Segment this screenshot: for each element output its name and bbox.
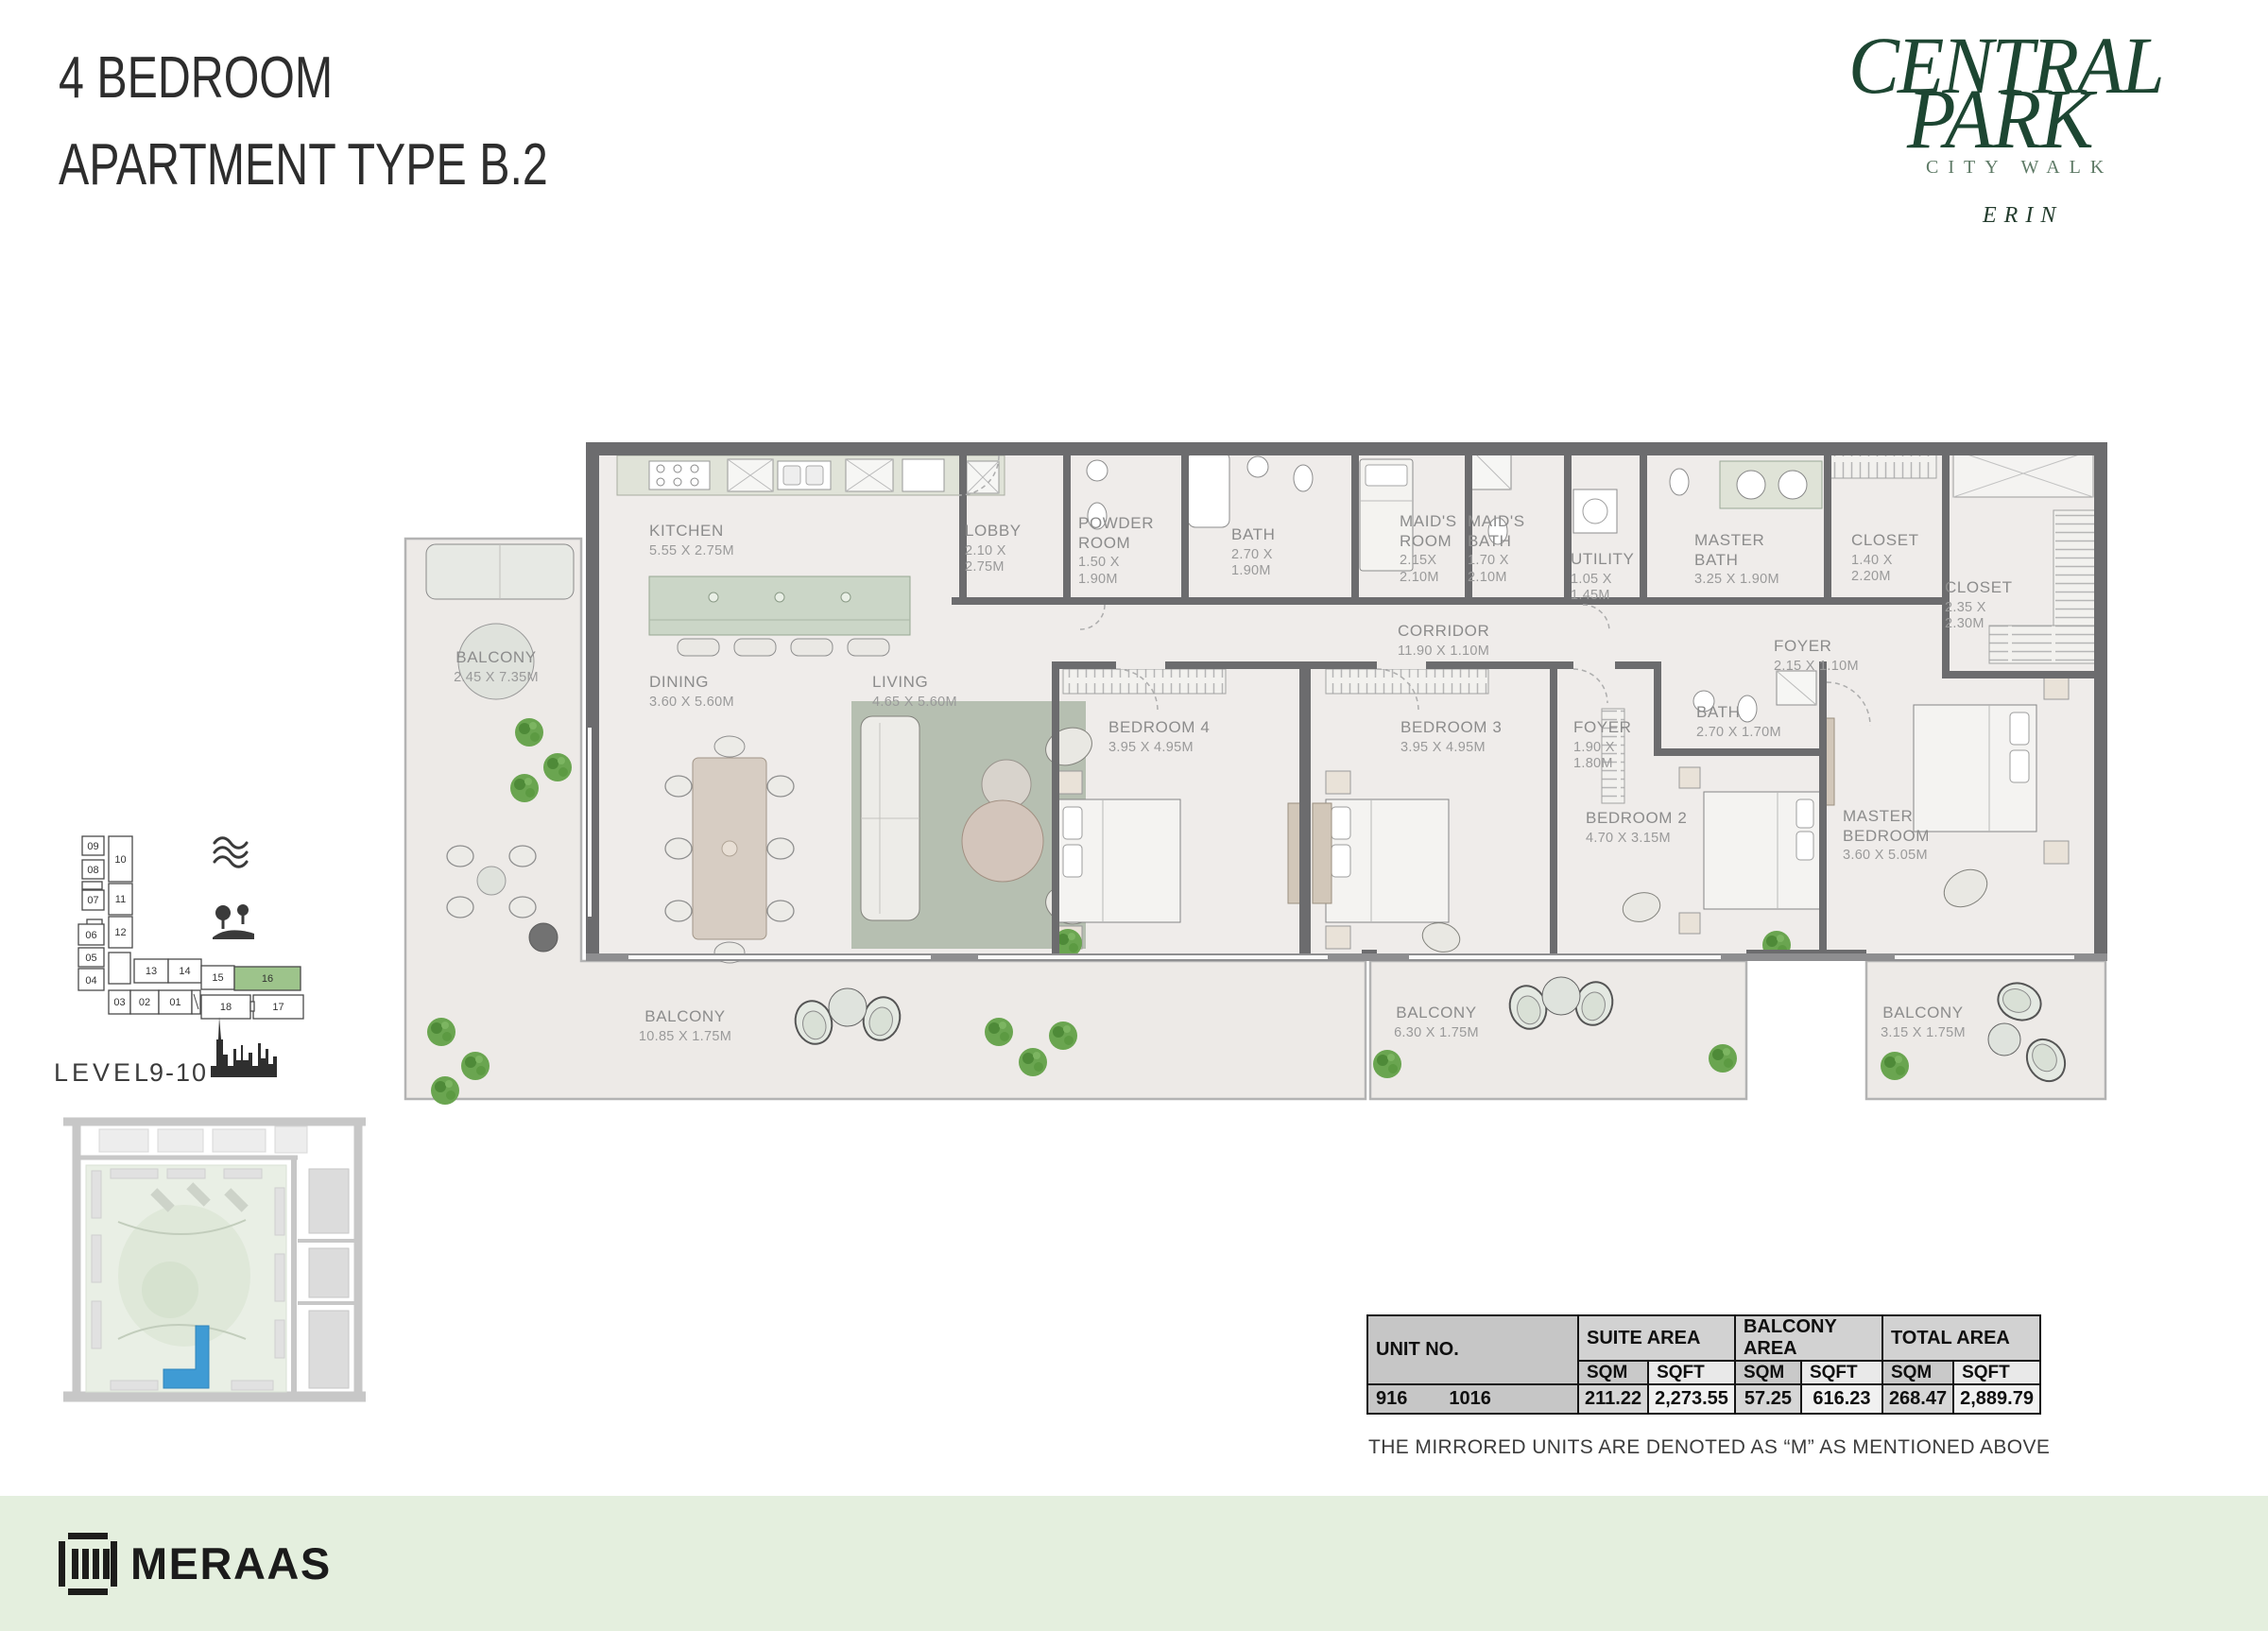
svg-text:09: 09 [87,841,98,852]
subheader-balcony-sqft: SQFT [1801,1361,1882,1384]
room-label-bath-bedrooms: BATH2.70 X 1.70M [1696,703,1781,741]
room-label-living: LIVING4.65 X 5.60M [872,673,957,711]
title-apartment-type: APARTMENT TYPE B.2 [59,136,548,195]
total-sqft-value: 2,889.79 [1953,1384,2040,1414]
table-row: 9161016 211.22 2,273.55 57.25 616.23 268… [1367,1384,2040,1414]
svg-text:07: 07 [87,895,98,906]
svg-text:17: 17 [272,1002,283,1013]
logo-park: PARK [1907,77,2210,163]
room-label-corridor: CORRIDOR11.90 X 1.10M [1398,622,1489,660]
room-label-bedroom-4: BEDROOM 43.95 X 4.95M [1108,718,1210,756]
meraas-wordmark: MERAAS [130,1537,332,1589]
level-label: LEVEL [54,1058,152,1087]
col-header-suite-area: SUITE AREA [1578,1315,1735,1361]
room-label-foyer-entry: FOYER2.15 X 1.10M [1774,637,1859,675]
col-header-unit-no: UNIT NO. [1367,1315,1578,1384]
balcony-sqft-value: 616.23 [1801,1384,1882,1414]
room-label-balcony-master: BALCONY3.15 X 1.75M [1857,1004,1989,1041]
brochure-page: 4 BEDROOM APARTMENT TYPE B.2 CENTRAL PAR… [0,0,2268,1631]
unit-numbers: 9161016 [1367,1384,1578,1414]
balcony-sqm-value: 57.25 [1735,1384,1801,1414]
svg-text:10: 10 [114,854,126,866]
room-label-dining: DINING3.60 X 5.60M [649,673,734,711]
suite-sqm-value: 211.22 [1578,1384,1648,1414]
subheader-total-sqft: SQFT [1953,1361,2040,1384]
title-bedrooms: 4 BEDROOM [59,49,548,108]
level-value: 9-10 [149,1058,208,1087]
key-plan: 09 10 08 07 11 06 12 05 04 13 14 15 16 0… [52,813,335,1096]
col-header-balcony-area: BALCONY AREA [1735,1315,1882,1361]
room-label-bedroom-2: BEDROOM 24.70 X 3.15M [1586,809,1687,847]
skyline-icon [211,1017,277,1077]
room-label-kitchen: KITCHEN5.55 X 2.75M [649,522,734,559]
site-map [52,1101,373,1413]
subheader-suite-sqm: SQM [1578,1361,1648,1384]
subheader-balcony-sqm: SQM [1735,1361,1801,1384]
meraas-logo-icon [59,1533,117,1595]
subheader-total-sqm: SQM [1882,1361,1953,1384]
svg-text:13: 13 [146,966,157,977]
room-label-balcony-main: BALCONY10.85 X 1.75M [610,1007,761,1045]
area-table: UNIT NO. SUITE AREA BALCONY AREA TOTAL A… [1366,1314,2041,1415]
col-header-total-area: TOTAL AREA [1882,1315,2040,1361]
svg-text:15: 15 [212,972,223,984]
room-label-master-bath: MASTER BATH3.25 X 1.90M [1694,531,1779,589]
subheader-suite-sqft: SQFT [1648,1361,1735,1384]
svg-text:08: 08 [87,865,98,876]
room-label-maids-room: MAID'S ROOM2.15X 2.10M [1400,512,1457,587]
footer: MERAAS [0,1496,2268,1631]
page-title: 4 BEDROOM APARTMENT TYPE B.2 [59,49,686,195]
central-park-logo: CENTRAL PARK CITY WALK ERIN [1833,25,2230,229]
room-label-master-bedroom: MASTER BEDROOM3.60 X 5.05M [1843,807,1930,865]
mirrored-units-note: THE MIRRORED UNITS ARE DENOTED AS “M” AS… [1368,1436,2050,1459]
svg-text:14: 14 [179,966,190,977]
svg-text:02: 02 [139,997,150,1008]
room-label-foyer-bedrooms: FOYER1.90 X 1.80M [1573,718,1632,773]
svg-text:06: 06 [85,930,96,941]
unit-number-a: 916 [1376,1388,1407,1409]
svg-text:01: 01 [169,997,180,1008]
svg-text:11: 11 [115,894,126,905]
waves-icon [215,838,247,867]
room-label-maids-bath: MAID'S BATH1.70 X 2.10M [1468,512,1525,587]
room-label-closet-1: CLOSET1.40 X 2.20M [1851,531,1919,586]
svg-text:04: 04 [85,975,96,987]
svg-text:16: 16 [262,973,273,985]
room-label-balcony-left: BALCONY2.45 X 7.35M [435,648,558,686]
room-label-balcony-center: BALCONY6.30 X 1.75M [1366,1004,1507,1041]
room-label-closet-2: CLOSET2.35 X 2.30M [1945,578,2013,633]
total-sqm-value: 268.47 [1882,1384,1953,1414]
svg-text:03: 03 [113,997,125,1008]
logo-erin: ERIN [1983,203,2230,229]
room-label-bedroom-3: BEDROOM 33.95 X 4.95M [1400,718,1502,756]
room-label-powder-room: POWDER ROOM1.50 X 1.90M [1078,514,1154,589]
room-label-bath: BATH2.70 X 1.90M [1231,525,1275,580]
room-label-utility: UTILITY1.05 X 1.45M [1571,550,1635,605]
room-label-lobby: LOBBY2.10 X 2.75M [965,522,1022,576]
svg-text:18: 18 [220,1002,232,1013]
unit-number-b: 1016 [1449,1388,1491,1409]
svg-text:12: 12 [114,927,126,938]
svg-text:05: 05 [85,953,96,964]
park-icon [213,904,254,939]
floor-plan: KITCHEN5.55 X 2.75M LOBBY2.10 X 2.75M PO… [402,435,2112,1106]
suite-sqft-value: 2,273.55 [1648,1384,1735,1414]
